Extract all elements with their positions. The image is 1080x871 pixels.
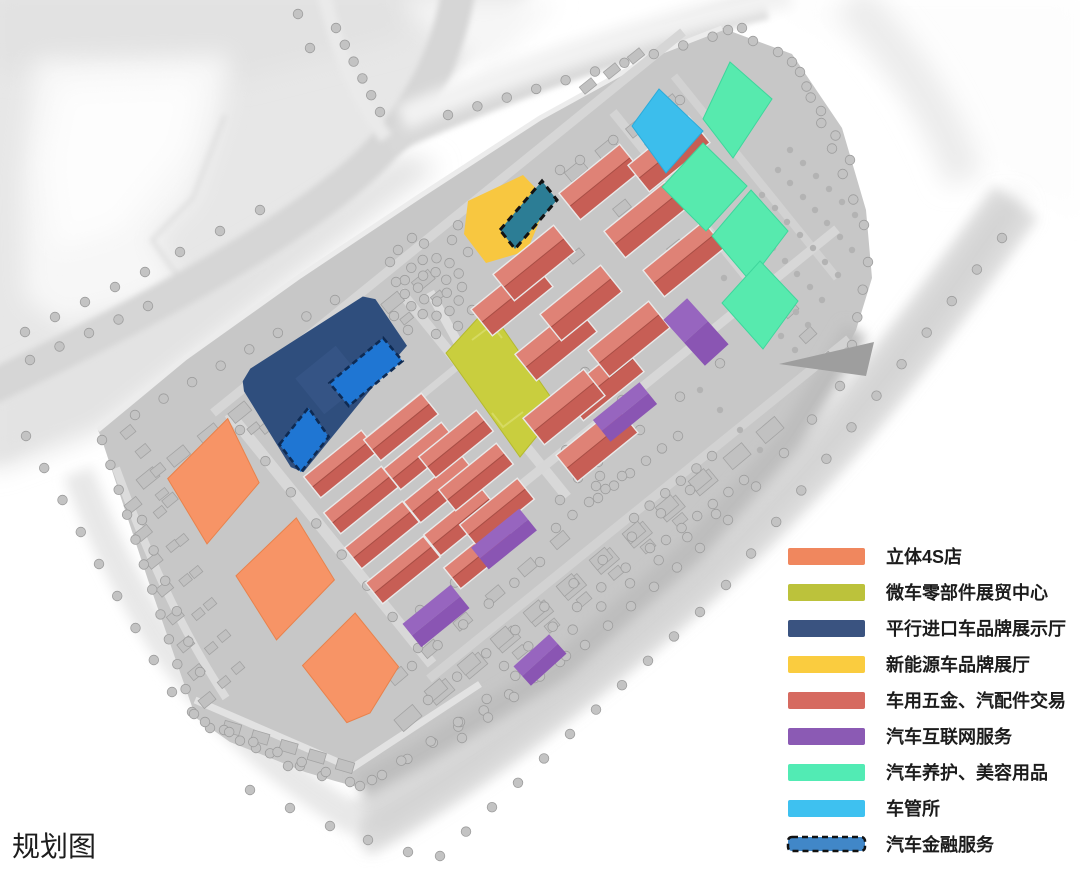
svg-text:汽车金融服务: 汽车金融服务 xyxy=(886,834,995,855)
svg-text:平行进口车品牌展示厅: 平行进口车品牌展示厅 xyxy=(886,618,1066,639)
svg-text:规划图: 规划图 xyxy=(12,831,96,862)
svg-text:立体4S店: 立体4S店 xyxy=(886,546,962,567)
svg-text:汽车互联网服务: 汽车互联网服务 xyxy=(886,726,1013,747)
svg-text:微车零部件展贸中心: 微车零部件展贸中心 xyxy=(885,582,1048,603)
svg-text:车用五金、汽配件交易: 车用五金、汽配件交易 xyxy=(886,690,1066,711)
svg-text:车管所: 车管所 xyxy=(886,798,940,819)
svg-text:汽车养护、美容用品: 汽车养护、美容用品 xyxy=(886,762,1048,783)
svg-text:新能源车品牌展厅: 新能源车品牌展厅 xyxy=(886,654,1030,675)
